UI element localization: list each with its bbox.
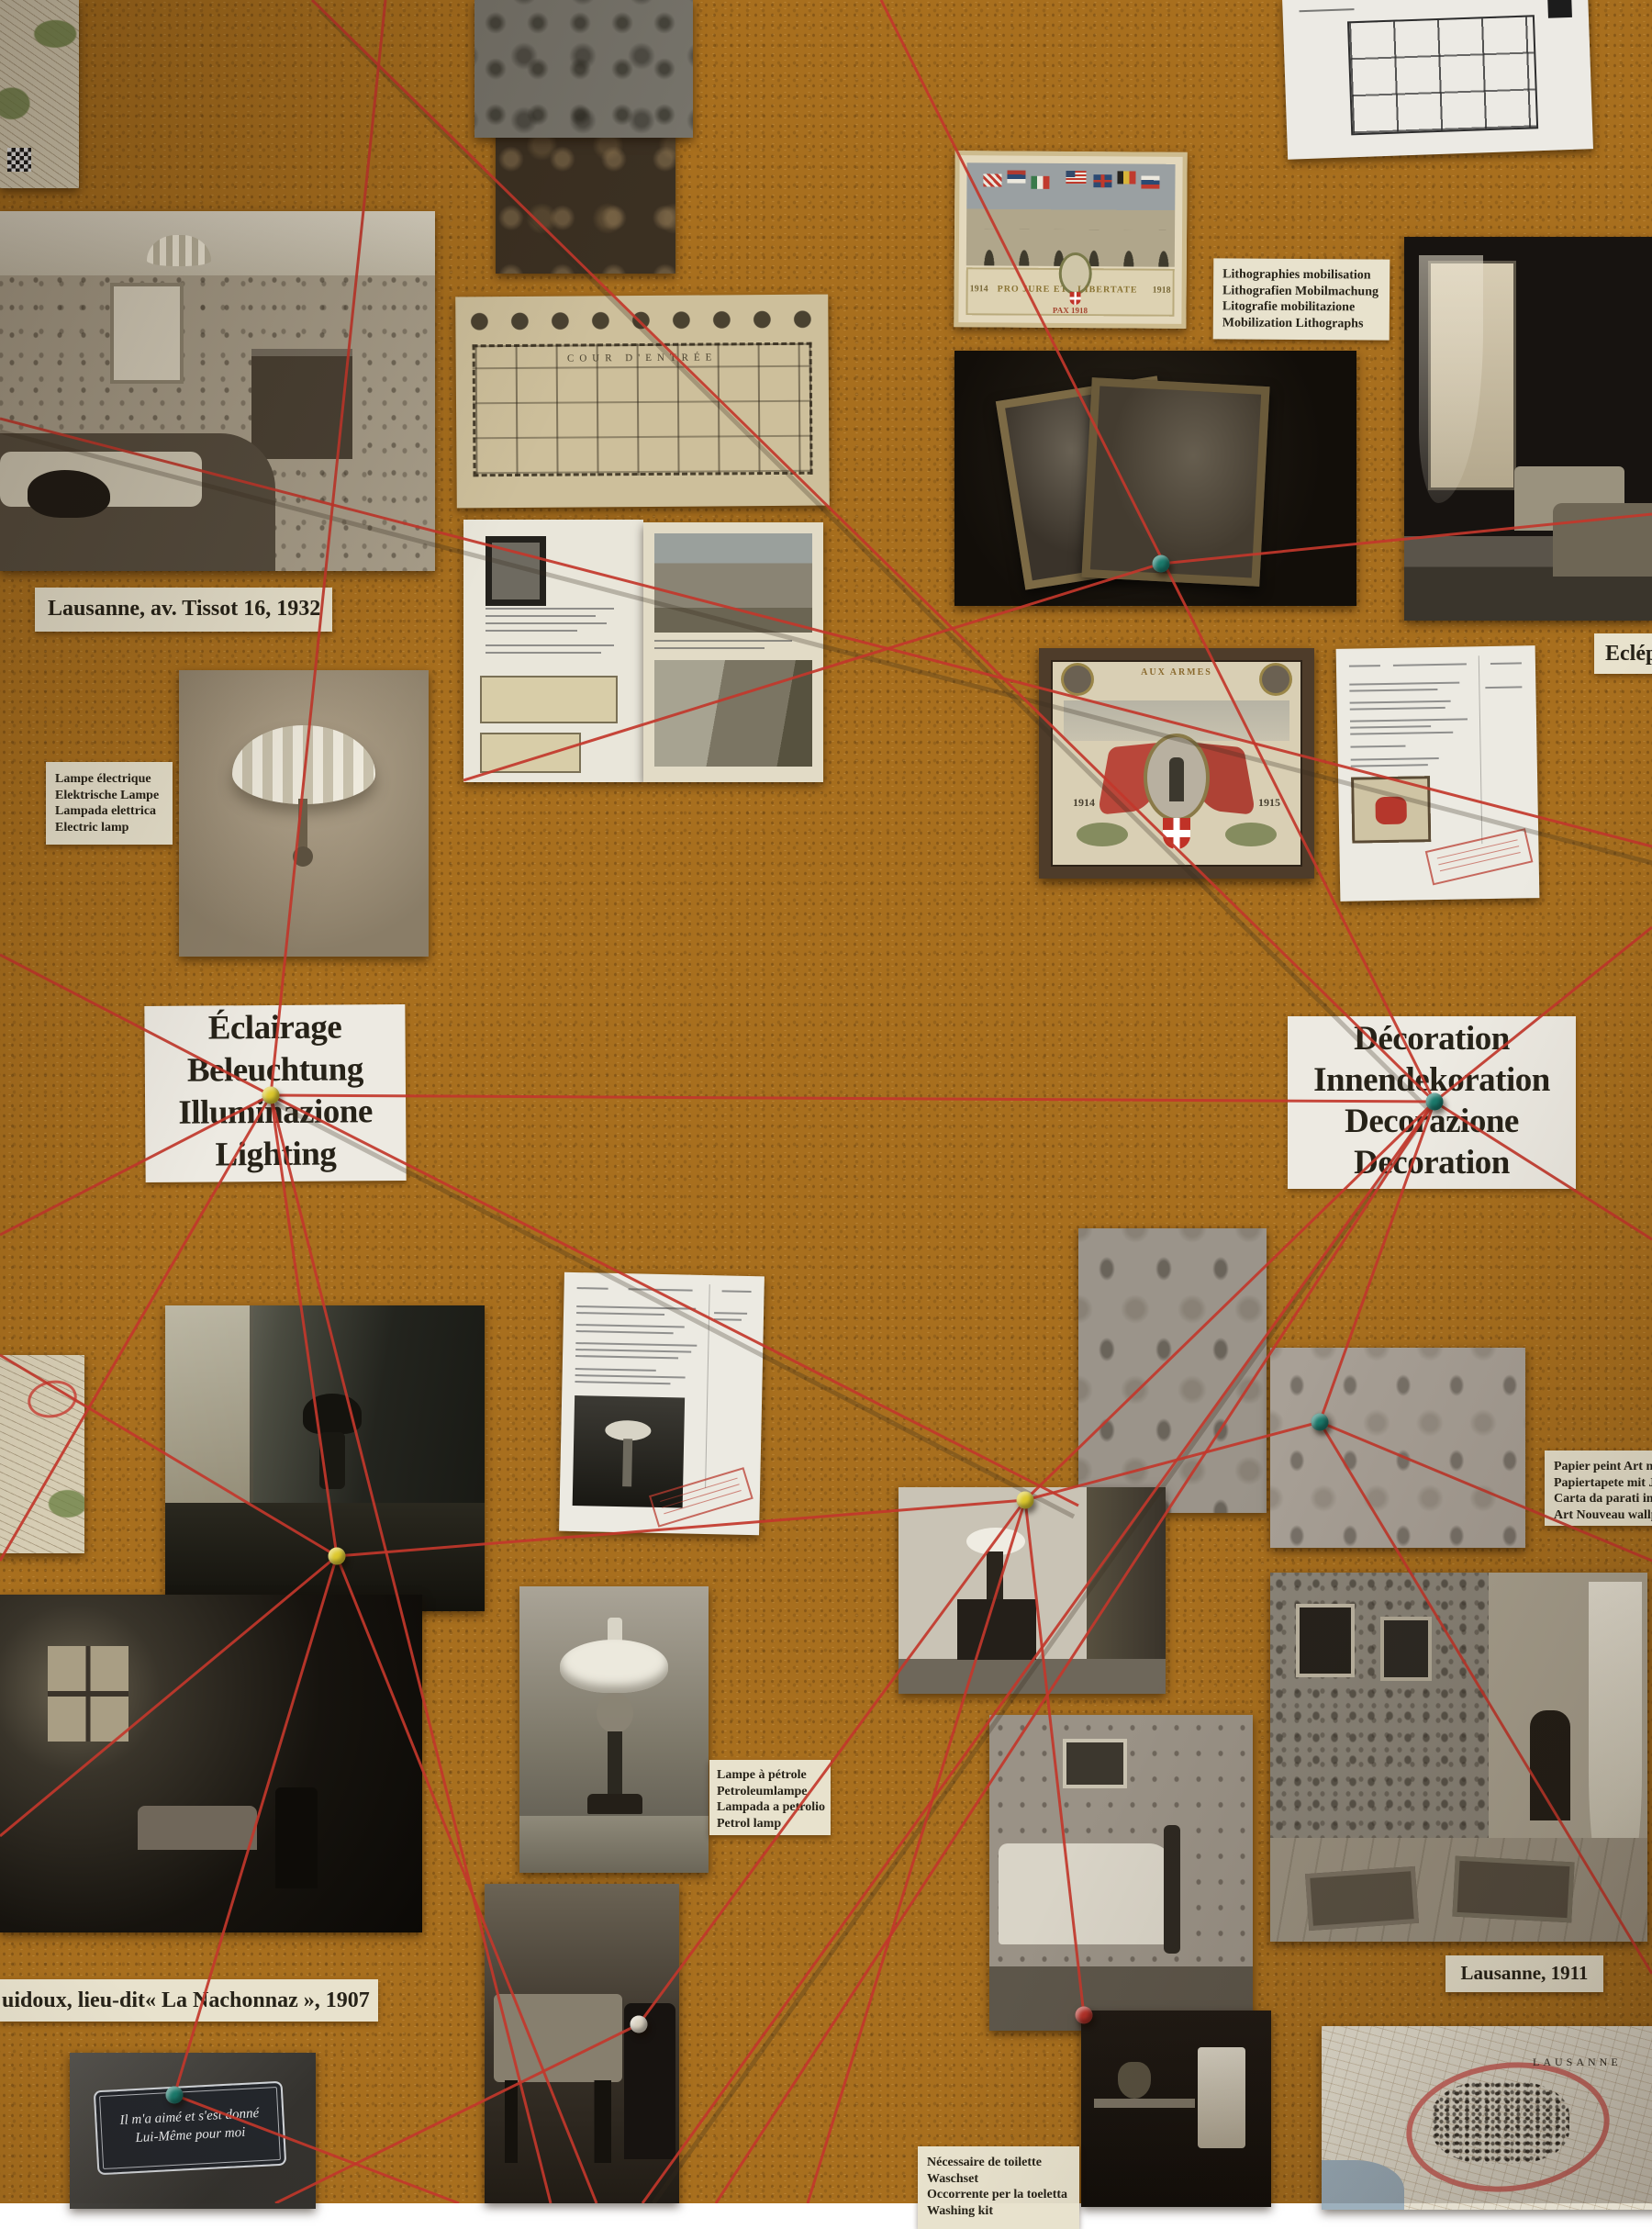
litho-motto-left: PRO JURE ET — [998, 284, 1068, 295]
corner-lamp-table — [957, 1599, 1036, 1660]
cert-laurel-right — [1225, 823, 1277, 846]
label-text: uidoux, lieu-dit« La Nachonnaz », 1907 — [2, 1988, 370, 2012]
photo-map-lausanne: LAUSANNE — [1322, 2026, 1652, 2210]
flag-japan — [983, 174, 1001, 186]
cert-year-left: 1914 — [1073, 796, 1095, 810]
label-line: Papier peint Art n — [1554, 1459, 1652, 1475]
chair-silhouette — [275, 1787, 318, 1888]
cert-year-right: 1915 — [1258, 796, 1280, 810]
photo-enamel-plaque: Il m'a aimé et s'est donné Lui-Même pour… — [70, 2053, 316, 2209]
label-eclepens: Eclép — [1594, 633, 1652, 674]
page-photo-building-2 — [654, 660, 812, 767]
label-line: Art Nouveau wallp — [1554, 1507, 1652, 1524]
label-line: Nécessaire de toilette — [927, 2155, 1070, 2171]
label-line: Washing kit — [927, 2203, 1070, 2220]
label-line: Lighting — [145, 1133, 406, 1177]
table-white-cloth — [138, 1806, 257, 1850]
cert-soldier-figure — [1169, 757, 1184, 801]
page-photo-building-1 — [654, 533, 812, 633]
cert-oval-portrait — [1147, 737, 1206, 818]
wallpaper-sample-grey — [474, 0, 693, 138]
pin-yellow-lamp-corner — [1017, 1492, 1034, 1509]
floor-strip — [899, 1659, 1166, 1694]
lamp-finial — [293, 846, 313, 867]
page-plan-thumb-2 — [480, 733, 581, 773]
label-line: Lampada a petrolio — [717, 1799, 823, 1816]
label-line: Litografie mobilitazione — [1222, 298, 1380, 316]
bentwood-chair — [1530, 1710, 1570, 1820]
map-stamp-square — [7, 148, 31, 172]
photo-lausanne-1911-interior — [1270, 1573, 1647, 1942]
lamp-shade-scalloped — [232, 725, 375, 804]
label-papier-peint: Papier peint Art n Papiertapete mit J Ca… — [1545, 1451, 1652, 1526]
small-window — [48, 1646, 128, 1742]
label-lithographies: Lithographies mobilisation Lithografien … — [1213, 258, 1390, 340]
flag-tricolor-1 — [1007, 171, 1025, 184]
bed-shape — [1553, 503, 1652, 577]
photo-bedroom-1932 — [0, 211, 435, 571]
flag-belgium — [1117, 171, 1135, 184]
label-necessaire: Nécessaire de toilette Waschset Occorren… — [918, 2146, 1079, 2229]
label-lausanne-1911: Lausanne, 1911 — [1445, 1955, 1603, 1992]
label-line: Papiertapete mit J — [1554, 1475, 1652, 1492]
map-red-ellipse — [1400, 2053, 1615, 2201]
lamp-base — [587, 1794, 642, 1814]
label-lampe-electrique: Lampe électrique Elektrische Lampe Lampa… — [46, 762, 173, 845]
white-towel — [1198, 2047, 1245, 2148]
bright-window-left — [165, 1305, 253, 1535]
cert-laurel-left — [1077, 823, 1128, 846]
framed-picture-2 — [1380, 1617, 1432, 1681]
card-thumbnail-certificate — [1351, 776, 1431, 843]
bedroom-dresser — [251, 349, 352, 459]
print-mobilization-litho: 1914 PRO JURE ET LIBERTATE 1918 PAX 1918 — [954, 151, 1187, 329]
photo-table-with-objects — [485, 1884, 679, 2203]
cert-medallion-left — [1064, 666, 1091, 693]
white-plan-filled-square — [1547, 0, 1572, 18]
thumb-red-flags — [1375, 797, 1407, 825]
litho-motto-right: LIBERTATE — [1077, 285, 1138, 295]
label-line: Electric lamp — [55, 820, 163, 836]
label-line: Éclairage — [144, 1006, 405, 1050]
label-line: Petrol lamp — [717, 1816, 823, 1832]
pin-red-washstand — [1076, 2007, 1093, 2024]
card-stamp-box — [1425, 828, 1534, 885]
lamp-white-shade — [560, 1640, 668, 1693]
catalog-card-certificate — [1336, 645, 1540, 902]
litho-year-right: 1918 — [1153, 286, 1171, 296]
pin-yellow-eclairage — [262, 1087, 280, 1104]
bed-frame-end — [1164, 1825, 1180, 1954]
label-line: Decoration — [1288, 1142, 1576, 1183]
litho-pax: PAX 1918 — [966, 305, 1174, 316]
litho-scene — [966, 162, 1176, 267]
bedroom-ceiling — [0, 211, 435, 275]
label-line: Lampe à pétrole — [717, 1767, 823, 1784]
photo-lamp-on-table — [165, 1305, 485, 1611]
lamp-stem — [298, 799, 307, 850]
map-city-name: LAUSANNE — [1533, 2055, 1622, 2069]
photo-map-fragment-left — [0, 1355, 84, 1553]
flag-uk — [1093, 174, 1111, 187]
flag-russia — [1141, 176, 1159, 189]
pin-teal-decoration — [1426, 1093, 1444, 1111]
page-plan-thumb-1 — [480, 676, 618, 723]
table-surface — [519, 1816, 709, 1873]
pin-teal-plaque — [166, 2087, 184, 2104]
bed-white-bedding — [999, 1843, 1173, 1944]
label-line: Décoration — [1288, 1018, 1576, 1059]
pin-yellow-lamp-table — [329, 1548, 346, 1565]
photo-petrol-lamp — [519, 1586, 709, 1873]
label-line: Lampada elettrica — [55, 803, 163, 820]
label-line: Beleuchtung — [145, 1048, 406, 1092]
photo-dark-interior-puidoux — [0, 1595, 422, 1932]
drawing-floorplan-sepia: COUR D'ENTRÉE — [455, 295, 830, 509]
catalog-card-lamp — [559, 1272, 765, 1536]
photo-lamp-room-corner — [899, 1487, 1166, 1694]
label-line: Waschset — [927, 2171, 1070, 2188]
cert-swiss-shield — [1163, 818, 1190, 849]
label-line: Lampe électrique — [55, 771, 163, 788]
drawing-floorplan-white — [1282, 0, 1593, 160]
catalog-page-left — [463, 520, 643, 782]
lamp-column — [608, 1731, 622, 1796]
map-lake — [1322, 2160, 1404, 2210]
cork-board: Lausanne, av. Tissot 16, 1932 COUR D'ENT… — [0, 0, 1652, 2203]
photo-washstand — [1081, 2011, 1271, 2207]
pin-teal-framed-prints — [1153, 555, 1170, 573]
photo-ceiling-lamp — [179, 670, 429, 957]
page-frame-image — [486, 536, 546, 606]
white-plan-outline — [1347, 15, 1538, 135]
table-legs — [505, 2080, 611, 2163]
washstand-top — [1094, 2099, 1195, 2108]
wallpaper-cherub-2 — [1270, 1348, 1525, 1548]
label-puidoux: uidoux, lieu-dit« La Nachonnaz », 1907 — [0, 1979, 378, 2022]
pin-teal-wallpaper — [1312, 1414, 1329, 1431]
label-line: Lithographies mobilisation — [1222, 266, 1380, 284]
flag-usa — [1066, 171, 1086, 184]
label-line: Carta da parati in — [1554, 1491, 1652, 1507]
thumb-lamp-stem — [622, 1439, 632, 1486]
litho-year-left: 1914 — [970, 284, 988, 294]
label-lampe-petrole: Lampe à pétrole Petroleumlampe Lampada a… — [709, 1760, 831, 1835]
label-text: Lausanne, 1911 — [1461, 1962, 1589, 1984]
framed-certificate: AUX ARMES 1914 1915 — [1039, 648, 1314, 879]
picture-frame-above-bed — [1063, 1739, 1127, 1788]
label-line: Lithografien Mobilmachung — [1222, 283, 1380, 300]
washstand-jug — [1118, 2062, 1151, 2099]
label-lausanne-1932: Lausanne, av. Tissot 16, 1932 — [35, 588, 332, 632]
label-line: Occorrente per la toeletta — [927, 2187, 1070, 2203]
pin-white-table-photo — [631, 2016, 648, 2033]
card-column-rule — [705, 1284, 710, 1488]
photo-bed-room — [989, 1715, 1253, 2031]
cert-medallion-right — [1262, 666, 1289, 693]
rug-1 — [1305, 1866, 1419, 1931]
rug-2 — [1452, 1856, 1574, 1923]
map-red-oval-mark — [24, 1376, 80, 1422]
corner-lamp-body — [987, 1551, 1003, 1601]
photo-curtain-room — [1404, 237, 1652, 621]
label-text: Lausanne, av. Tissot 16, 1932 — [48, 597, 320, 621]
bedroom-window — [110, 283, 184, 384]
catalog-page-right — [643, 522, 823, 782]
label-line: Mobilization Lithographs — [1222, 315, 1380, 332]
label-line: Petroleumlampe — [717, 1784, 823, 1800]
photo-map-fragment-topleft — [0, 0, 79, 188]
label-line: Elektrische Lampe — [55, 788, 163, 804]
glass-lamp-base — [319, 1432, 345, 1489]
table-cloth-shape — [494, 1994, 622, 2082]
enamel-plaque: Il m'a aimé et s'est donné Lui-Même pour… — [94, 2081, 287, 2176]
litho-banner: 1914 PRO JURE ET LIBERTATE 1918 PAX 1918 — [966, 267, 1174, 317]
lamp-glass-bowl — [597, 1693, 633, 1733]
label-text: Eclép — [1605, 642, 1652, 666]
framed-picture-1 — [1296, 1604, 1355, 1677]
cert-battle-band — [1064, 700, 1289, 741]
card-column-rule — [1479, 655, 1483, 844]
glass-lamp-silhouette — [303, 1394, 362, 1434]
framed-print-2 — [1081, 377, 1269, 587]
floorplan-trees-row — [461, 302, 822, 340]
wallpaper-cherub-1 — [1078, 1228, 1267, 1513]
flag-italy — [1031, 176, 1049, 189]
